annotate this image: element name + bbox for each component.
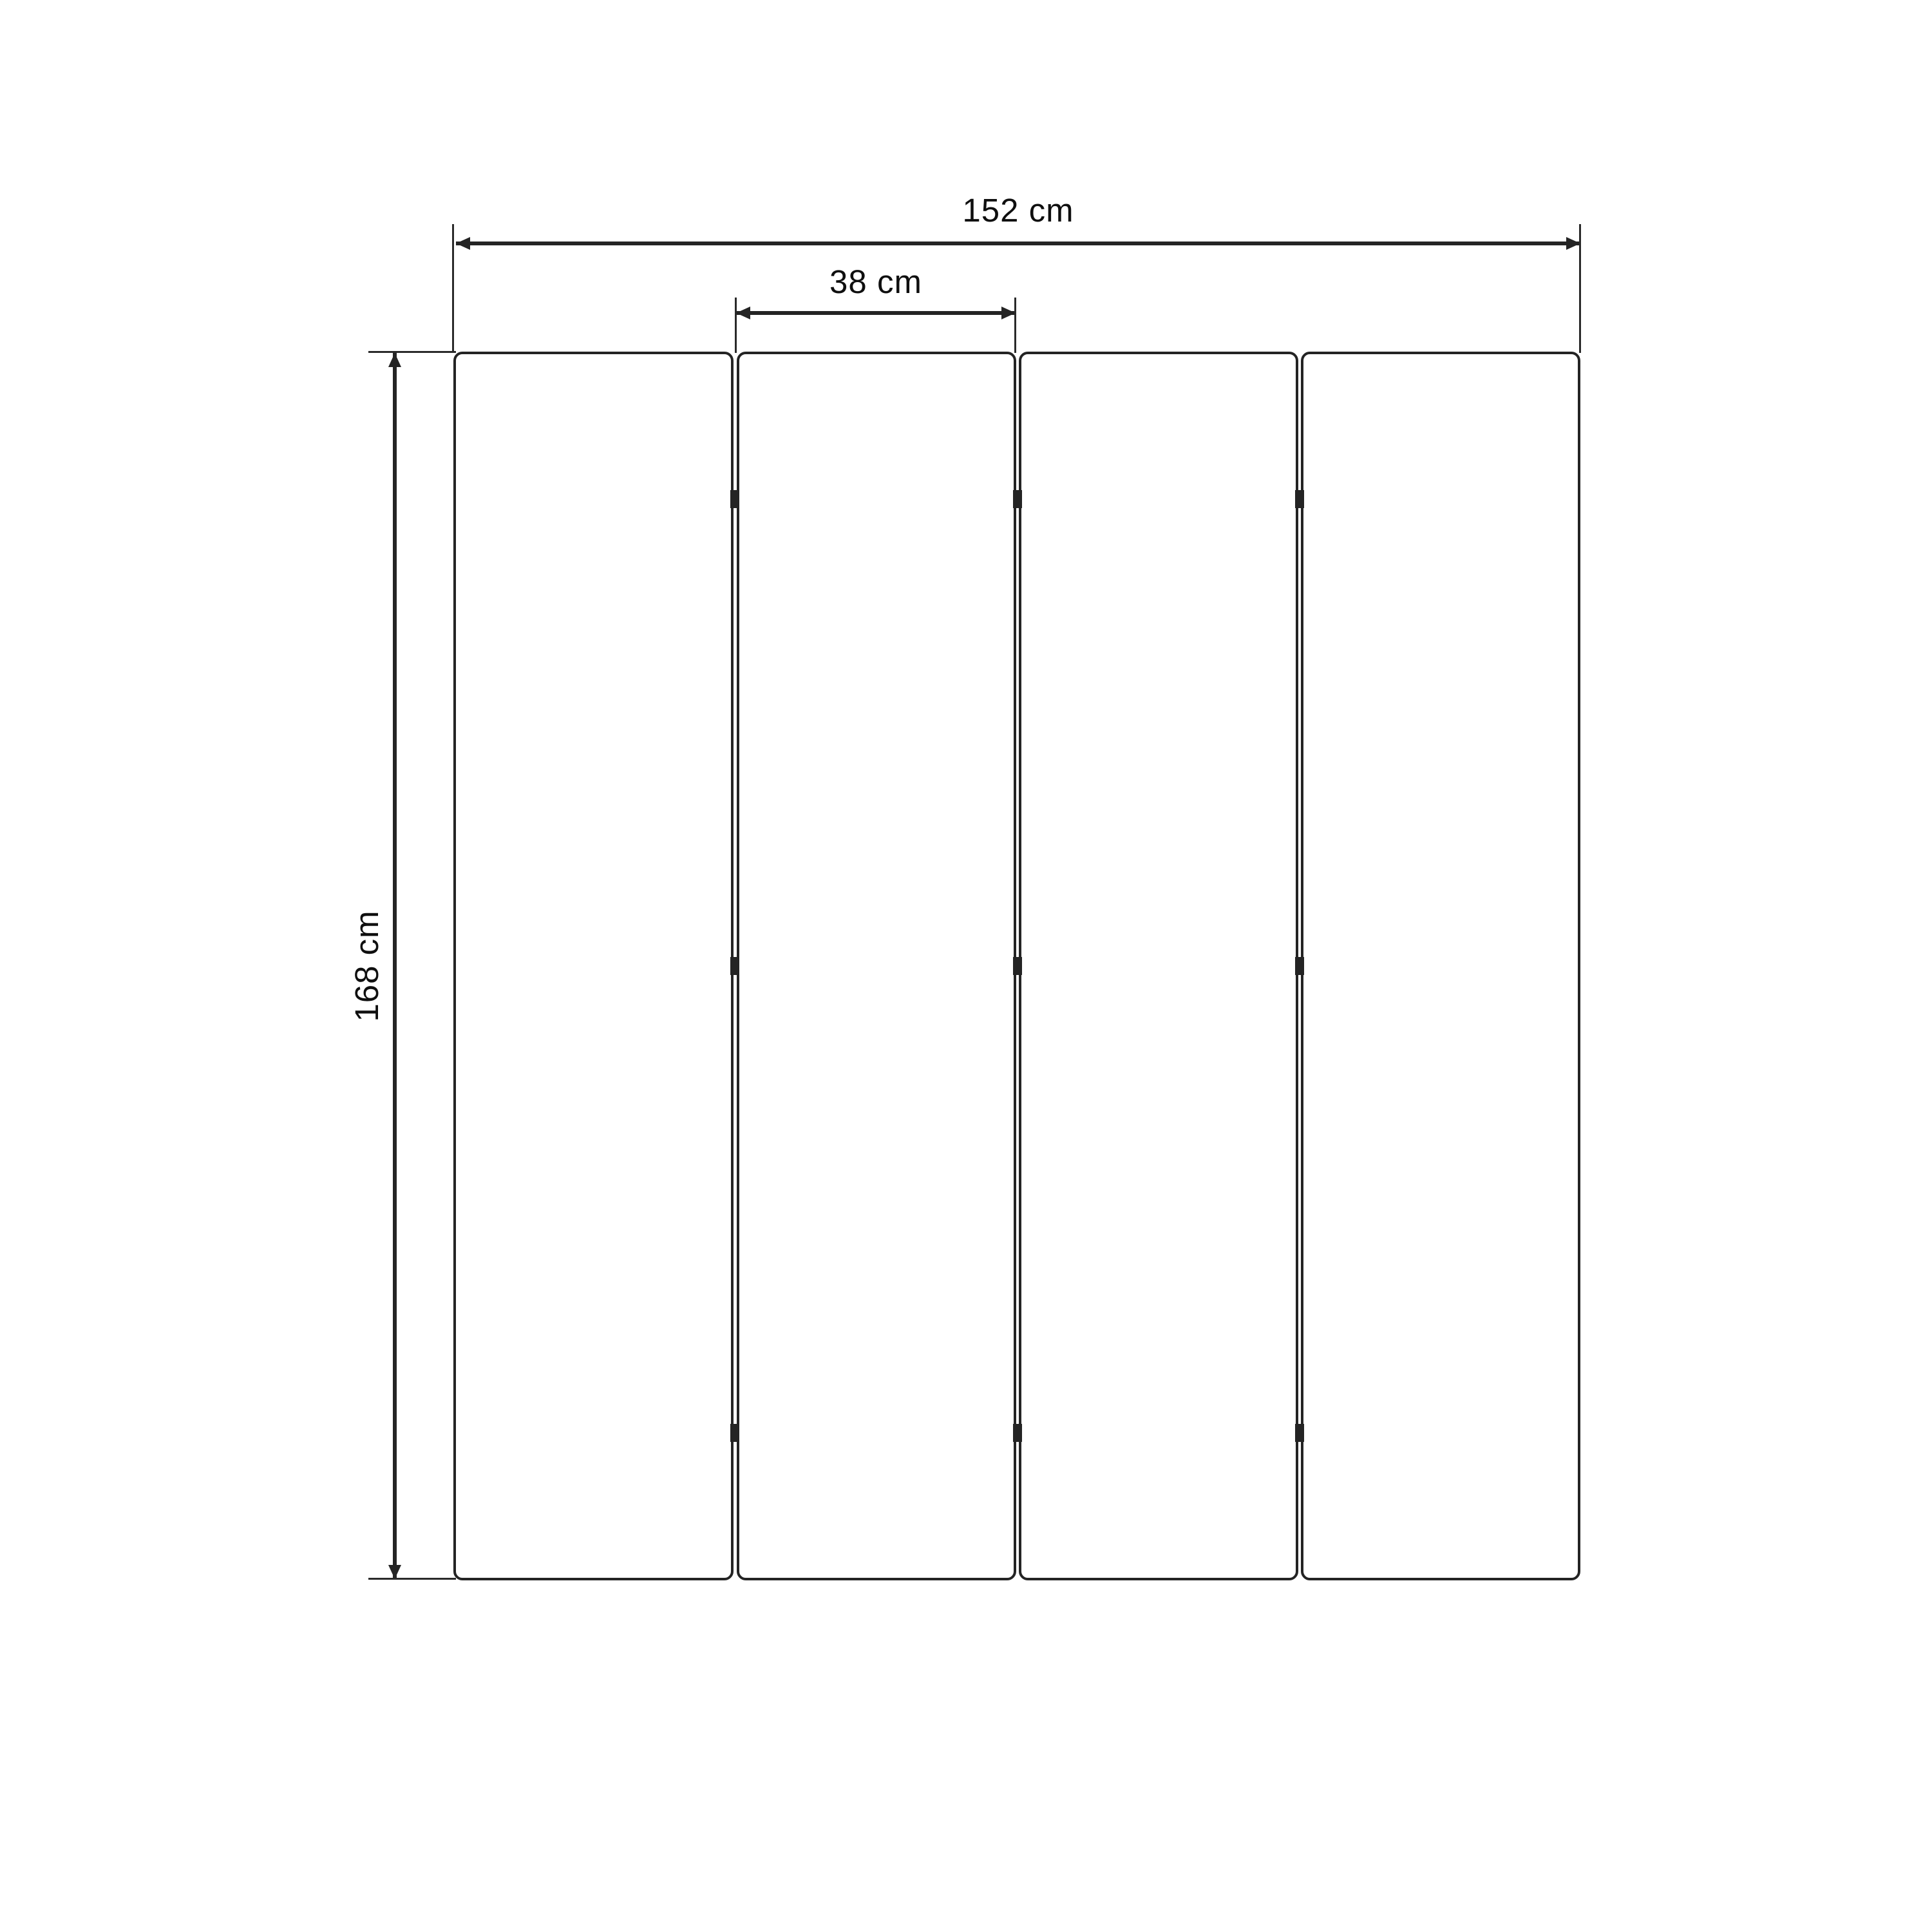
panel-2 (737, 352, 1016, 1580)
hinge-mark (1013, 1424, 1022, 1442)
hinge-mark (1013, 957, 1022, 975)
hinge-mark (1013, 490, 1022, 508)
hinge-mark (730, 957, 739, 975)
panel-width-label: 38 cm (747, 265, 1005, 299)
total-width-arrowhead-right (1566, 237, 1580, 250)
panel-width-dimension-line (736, 311, 1016, 315)
total-width-dimension-line (456, 241, 1580, 245)
panel-1 (453, 352, 734, 1580)
height-dimension-line (393, 353, 397, 1579)
total-width-extension-line-left (452, 224, 454, 353)
total-width-label: 152 cm (889, 194, 1147, 227)
hinge-mark (1295, 490, 1304, 508)
dimension-diagram: 152 cm 38 cm 168 cm (0, 0, 1932, 1932)
height-arrowhead-bottom (388, 1565, 401, 1579)
height-extension-line-bottom (368, 1578, 456, 1580)
panel-width-extension-line-right (1014, 298, 1016, 353)
height-extension-line-top (368, 351, 456, 353)
height-arrowhead-top (388, 353, 401, 367)
total-width-arrowhead-left (456, 237, 470, 250)
height-label: 168 cm (348, 837, 386, 1095)
hinge-mark (1295, 957, 1304, 975)
hinge-mark (730, 1424, 739, 1442)
total-width-extension-line-right (1579, 224, 1581, 353)
hinge-mark (730, 490, 739, 508)
panel-4 (1301, 352, 1580, 1580)
panel-width-arrowhead-left (736, 307, 750, 319)
panel-width-extension-line-left (735, 298, 737, 353)
hinge-mark (1295, 1424, 1304, 1442)
panel-width-arrowhead-right (1001, 307, 1016, 319)
panel-3 (1019, 352, 1298, 1580)
